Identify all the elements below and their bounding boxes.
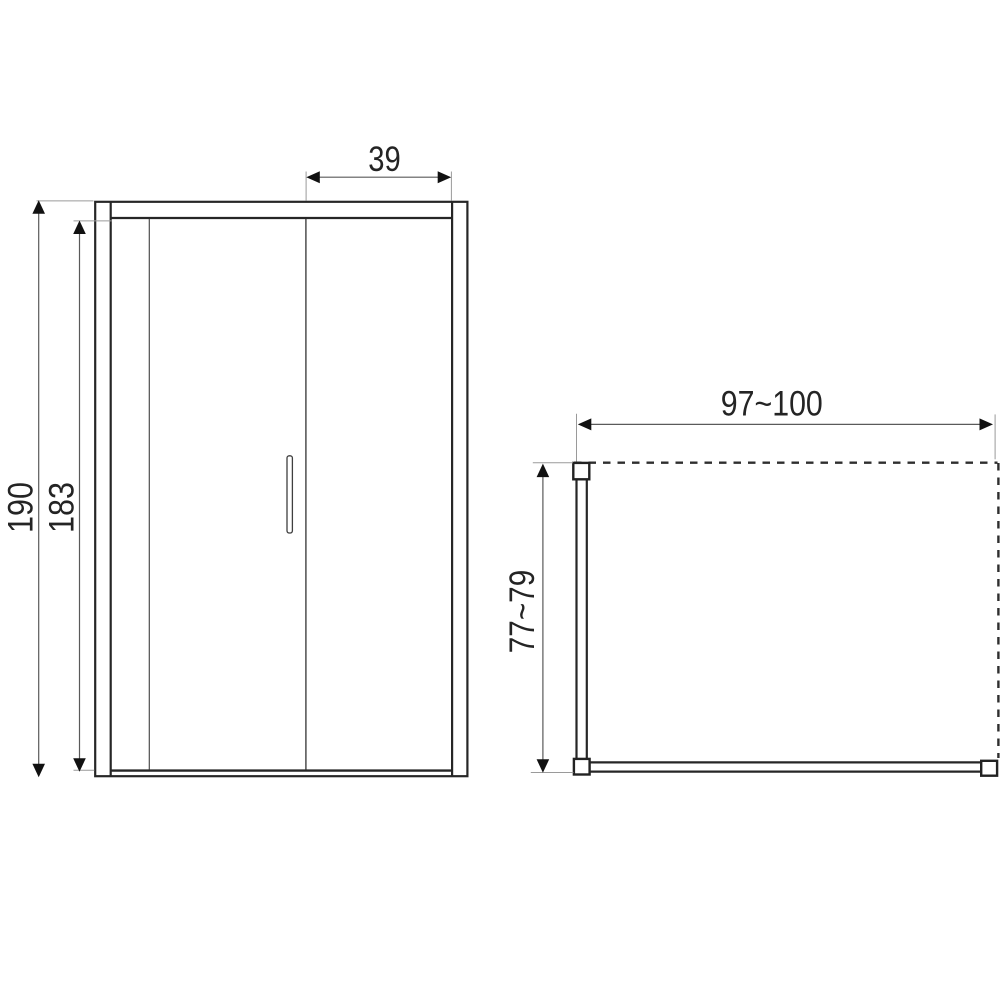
- svg-text:97~100: 97~100: [721, 384, 823, 424]
- svg-text:183: 183: [42, 482, 82, 533]
- svg-text:190: 190: [1, 482, 41, 533]
- svg-text:77~79: 77~79: [502, 570, 542, 654]
- svg-text:39: 39: [368, 139, 401, 179]
